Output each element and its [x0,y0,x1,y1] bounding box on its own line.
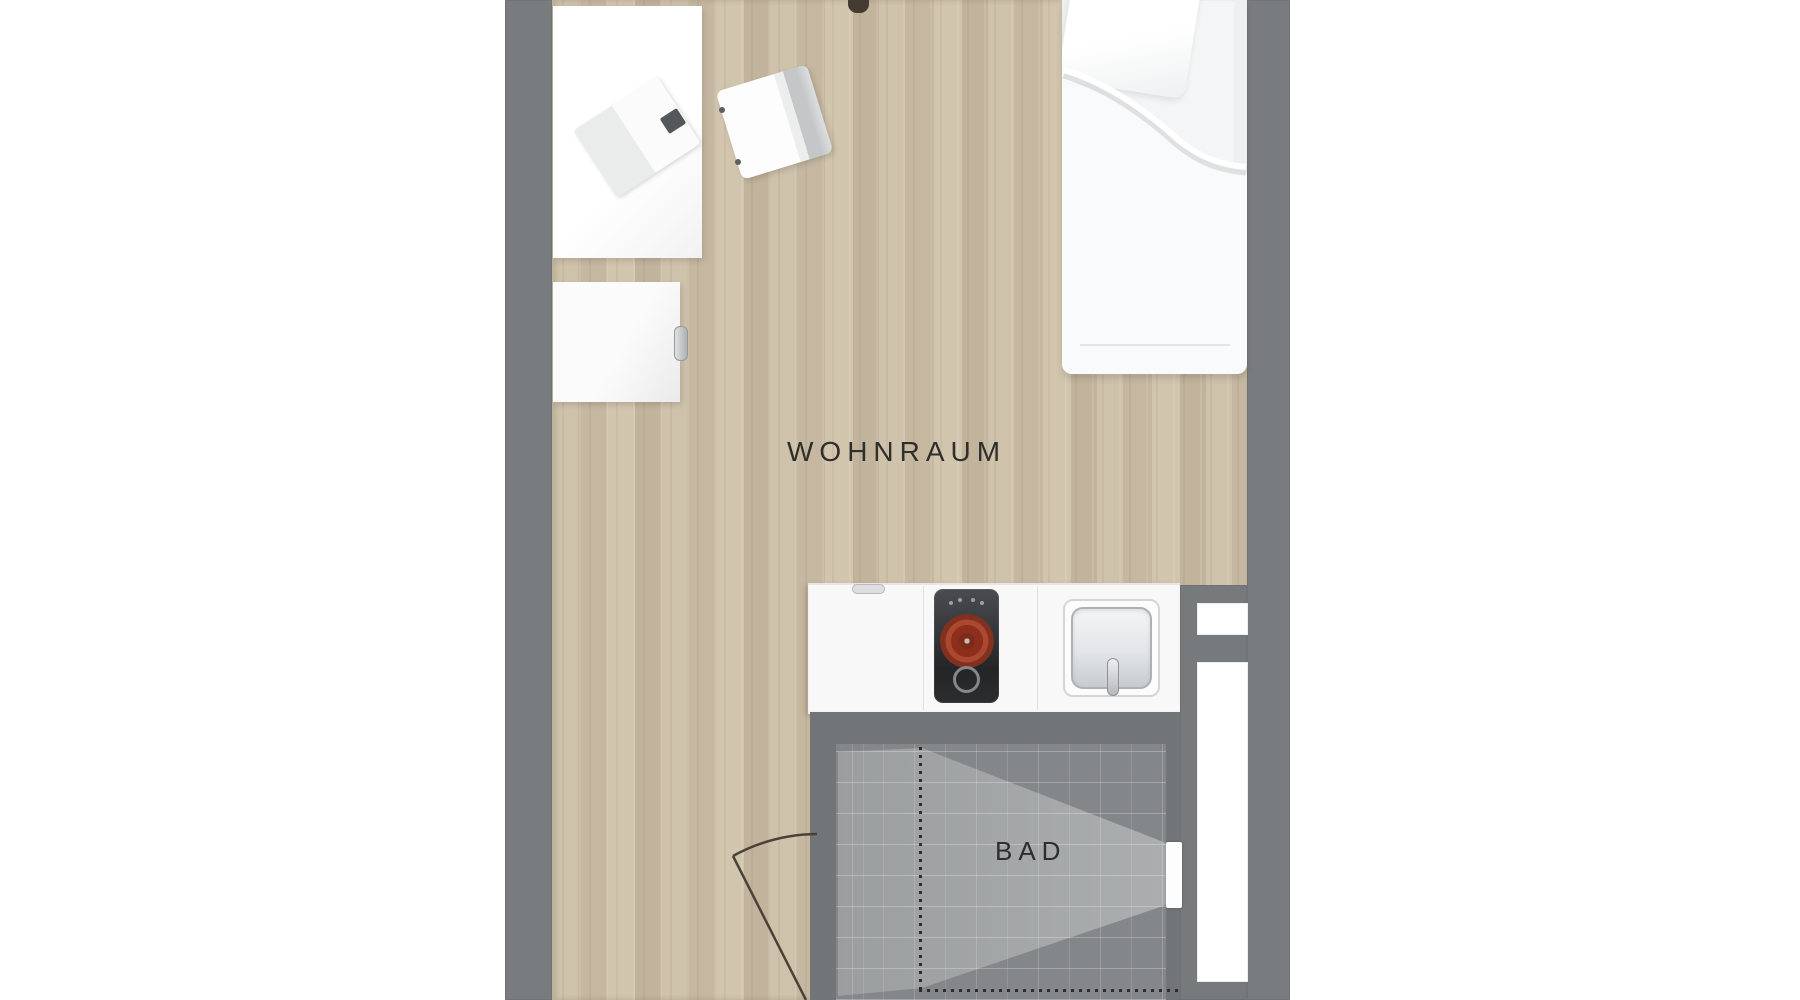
dashed-line-vertical [919,747,922,993]
cooktop-burner-small [953,666,980,693]
tile-grout-lines [836,744,1166,1000]
cooktop-control-dot [949,601,953,605]
room-label-bath: BAD [995,836,1066,867]
sink-faucet [1107,658,1119,696]
cooktop-control-dot [971,598,975,602]
counter-drawer-handle [852,584,885,594]
bathroom-door [1166,842,1182,908]
entrance-door-swing [690,800,860,1000]
bed [1062,0,1247,374]
cabinet [553,282,680,402]
bed-duvet-fold [1062,0,1247,374]
counter-seam [923,586,924,710]
chair-hinge-dot [719,107,725,113]
cabinet-handle [674,326,688,361]
dashed-line-horizontal [919,989,1179,992]
cooktop-control-dot [980,601,984,605]
wall-right [1247,0,1290,1000]
cooktop-control-dot [958,598,962,602]
room-label-living: WOHNRAUM [787,436,1006,468]
mattress-fold-line [1080,344,1230,346]
wall-niche-tall [1197,662,1248,982]
wall-niche-small [1197,603,1248,635]
chair-hinge-dot [735,159,741,165]
wall-left [505,0,552,1000]
cooktop-burner-red [940,614,994,668]
counter-seam [1037,586,1038,710]
floorplan-canvas: WOHNRAUM BAD [0,0,1800,1000]
